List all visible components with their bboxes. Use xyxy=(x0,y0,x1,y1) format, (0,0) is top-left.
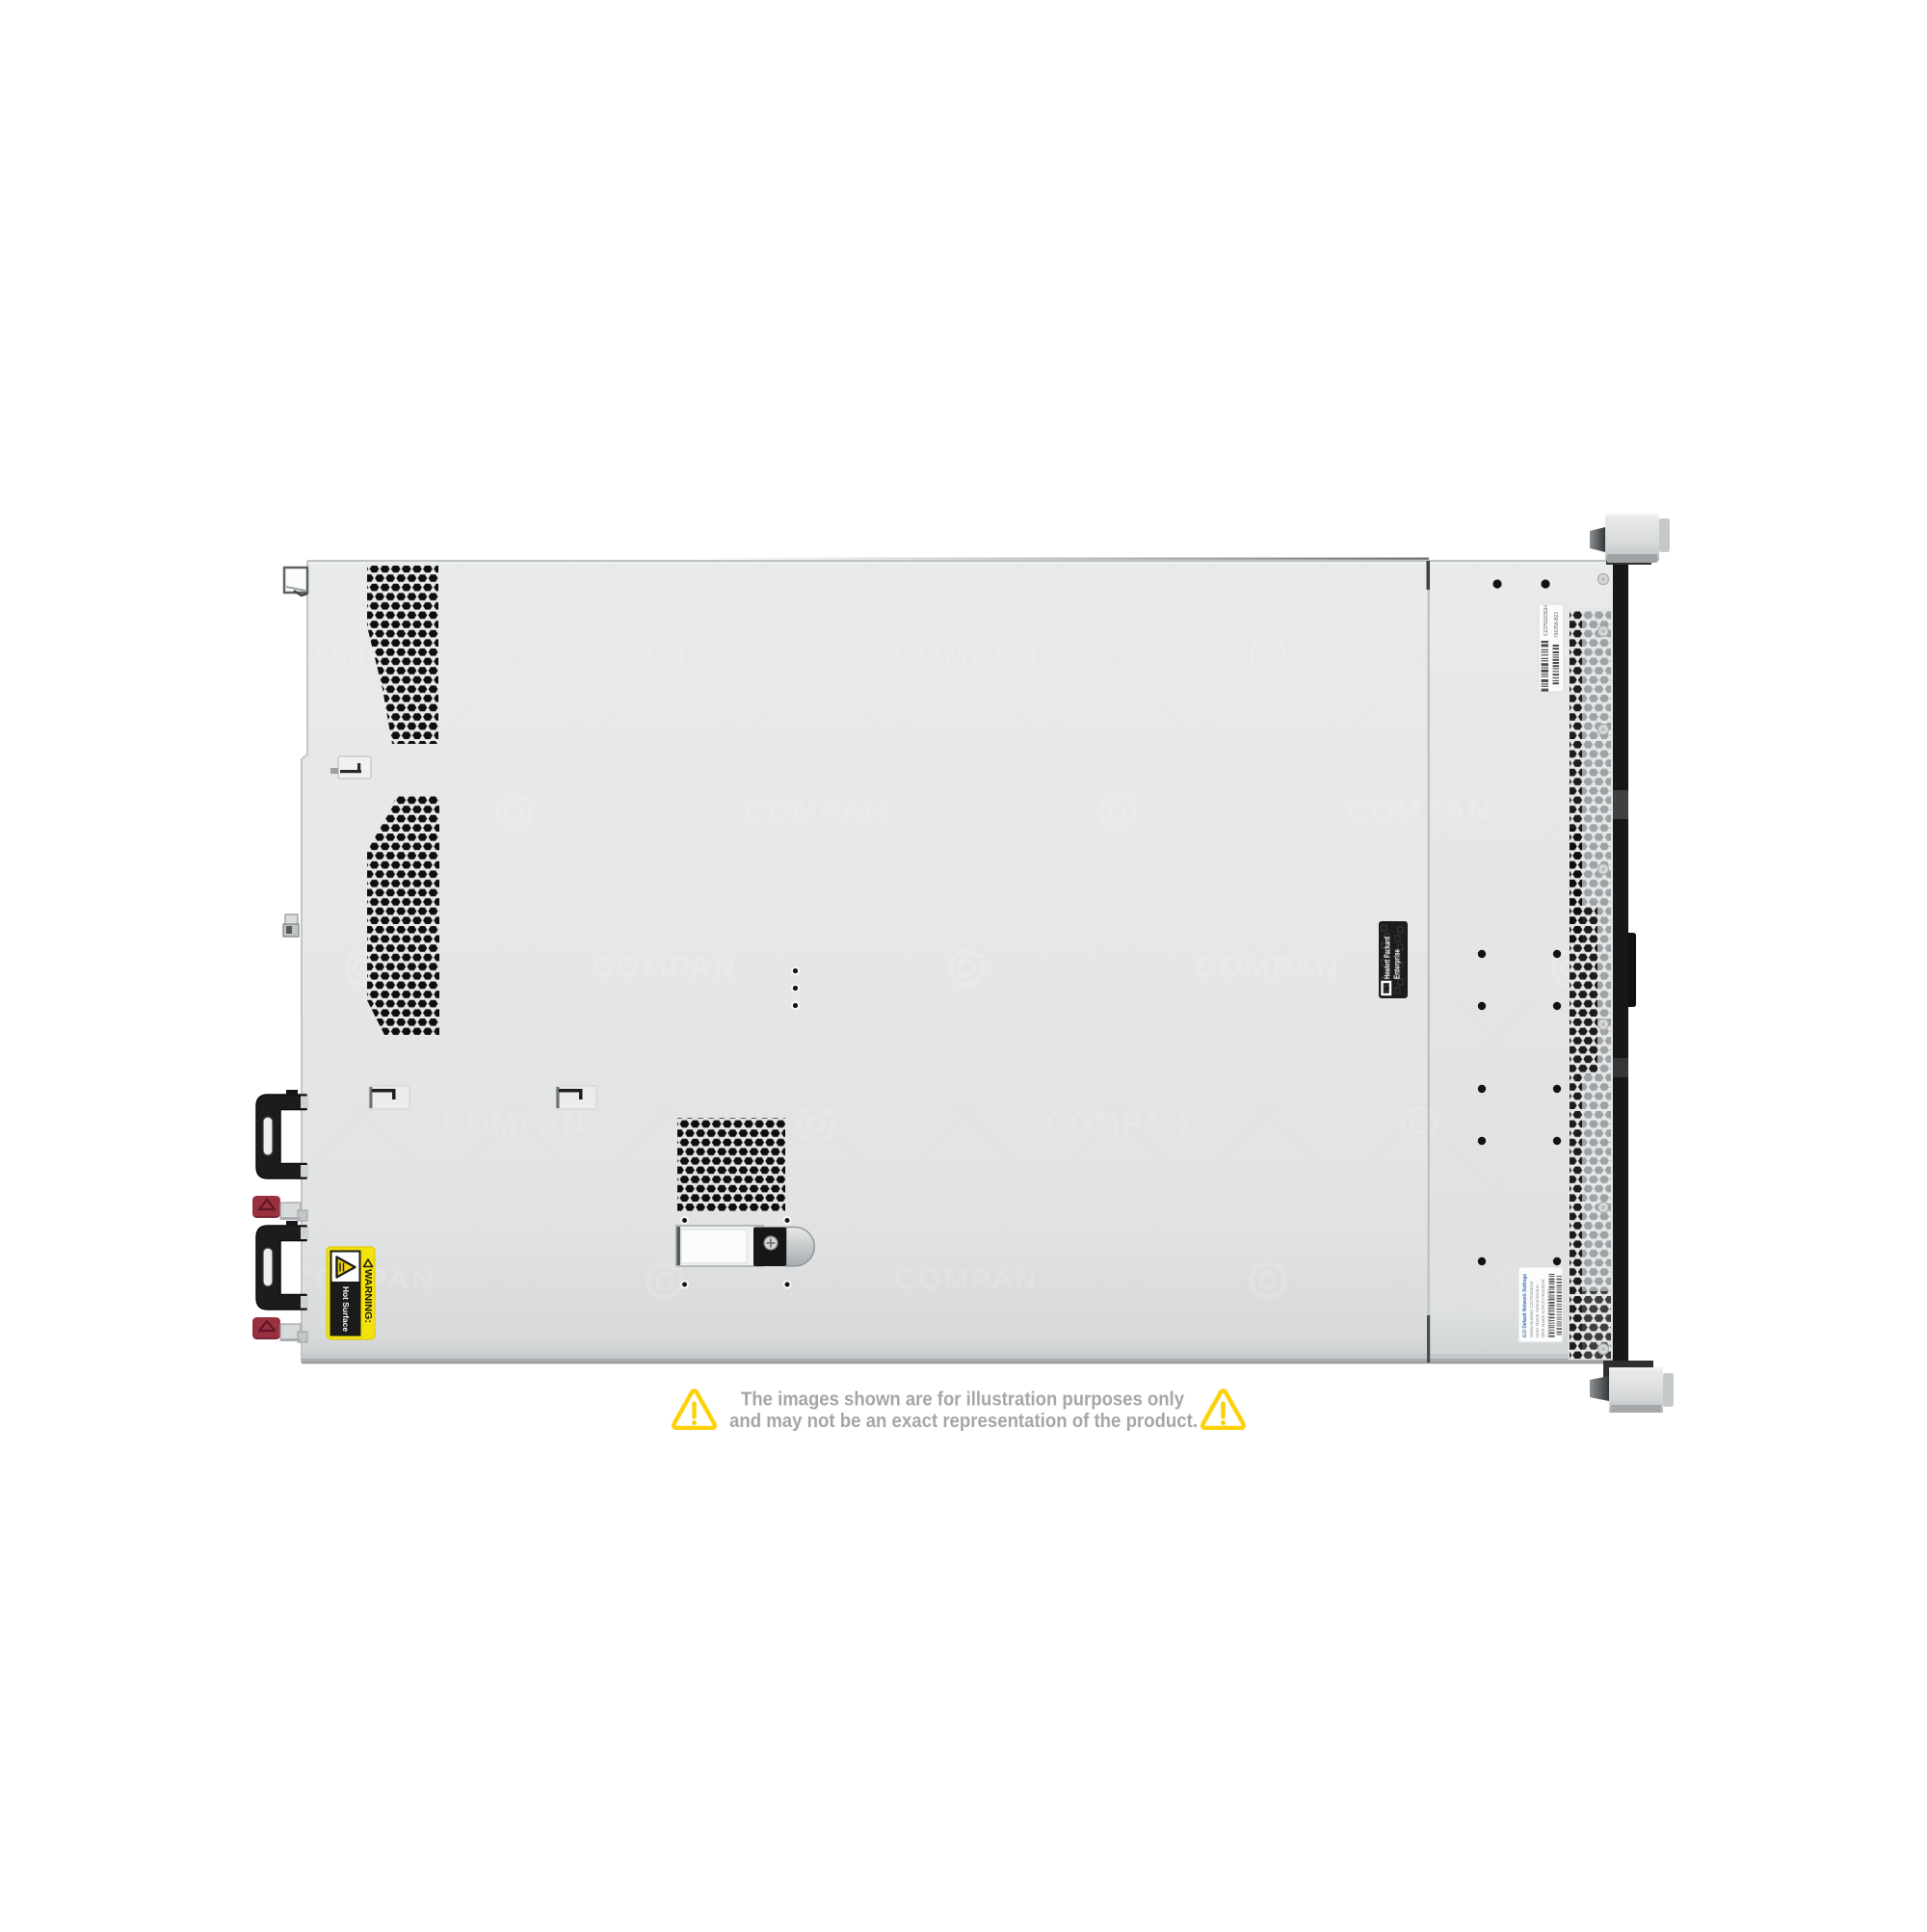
svg-text:COMPAN: COMPAN xyxy=(894,1262,1039,1296)
svg-text:COMPAN: COMPAN xyxy=(1347,794,1491,828)
svg-text:Enterprise: Enterprise xyxy=(1393,949,1402,979)
svg-text:COMPAN: COMPAN xyxy=(894,638,1039,672)
svg-text:Serial Number CZJ76103GH: Serial Number CZJ76103GH xyxy=(1529,1282,1534,1337)
svg-text:COMPAN: COMPAN xyxy=(1045,1106,1190,1140)
svg-text:and may not be an exact repres: and may not be an exact representation o… xyxy=(729,1410,1198,1432)
svg-text:CZJ76103GH: CZJ76103GH xyxy=(1544,605,1549,636)
svg-text:WARNING:: WARNING: xyxy=(362,1269,373,1323)
svg-text:766358-B21: 766358-B21 xyxy=(1554,612,1560,638)
svg-text:iLO Default Network Settings: iLO Default Network Settings xyxy=(1522,1274,1528,1337)
svg-text:Hewlett Packard: Hewlett Packard xyxy=(1384,937,1392,979)
svg-text:Hot Surface: Hot Surface xyxy=(341,1286,351,1332)
svg-text:User Name Administrator: User Name Administrator xyxy=(1535,1284,1540,1337)
svg-text:The images shown are for illus: The images shown are for illustration pu… xyxy=(741,1389,1185,1411)
svg-text:DNS Name ILOCZJ76103GH: DNS Name ILOCZJ76103GH xyxy=(1541,1280,1545,1337)
svg-text:COMPAN: COMPAN xyxy=(442,1106,587,1140)
svg-text:COMPAN: COMPAN xyxy=(593,950,737,984)
svg-text:COMPAN: COMPAN xyxy=(744,794,888,828)
svg-text:COMPAN: COMPAN xyxy=(1196,950,1340,984)
